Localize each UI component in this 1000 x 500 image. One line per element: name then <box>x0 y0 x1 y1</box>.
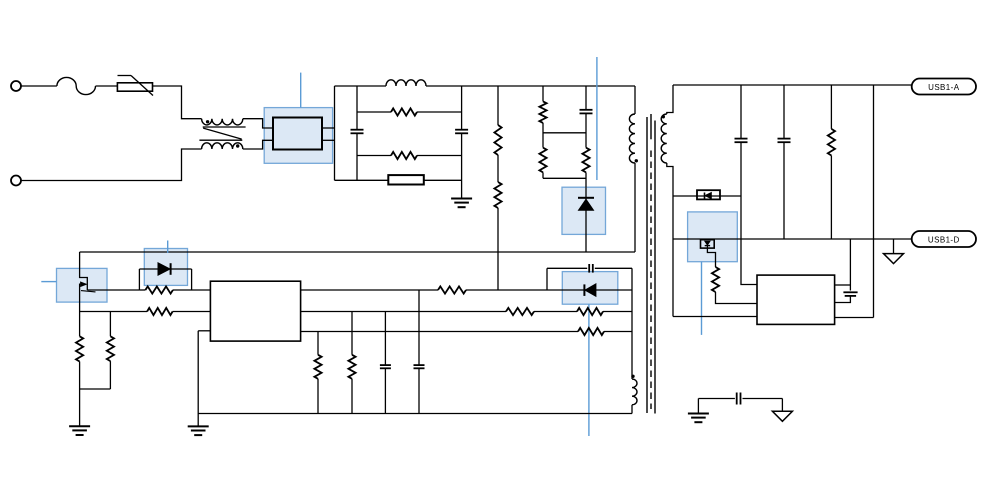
svg-text:USB1-D: USB1-D <box>928 236 960 245</box>
svg-text:USB1-A: USB1-A <box>928 83 960 92</box>
